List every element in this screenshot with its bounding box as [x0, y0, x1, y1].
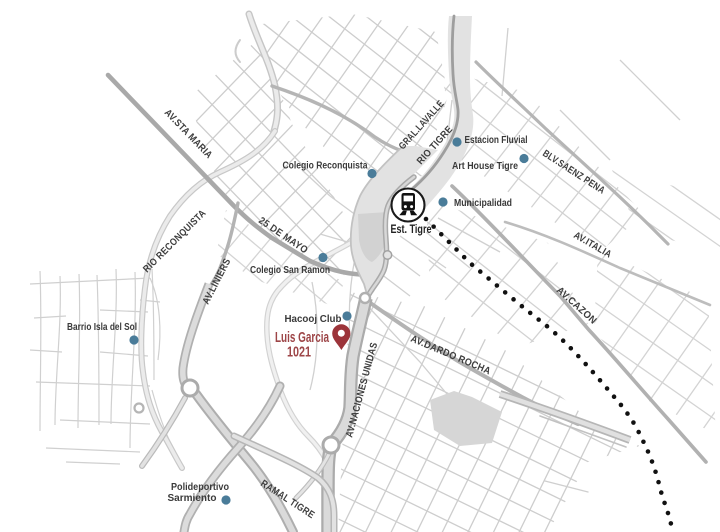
svg-text:Hacooj Club: Hacooj Club [285, 313, 342, 325]
svg-text:1021: 1021 [287, 345, 311, 361]
svg-text:Colegio San Ramon: Colegio San Ramon [250, 264, 330, 276]
svg-text:Barrio Isla del Sol: Barrio Isla del Sol [67, 321, 137, 333]
svg-text:Estacion Fluvial: Estacion Fluvial [465, 134, 528, 146]
svg-text:Municipalidad: Municipalidad [454, 197, 512, 209]
svg-text:Est. Tigre: Est. Tigre [391, 224, 432, 236]
svg-text:Sarmiento: Sarmiento [168, 492, 217, 504]
svg-text:Colegio Reconquista: Colegio Reconquista [283, 160, 368, 172]
svg-text:Art House Tigre: Art House Tigre [452, 160, 518, 172]
